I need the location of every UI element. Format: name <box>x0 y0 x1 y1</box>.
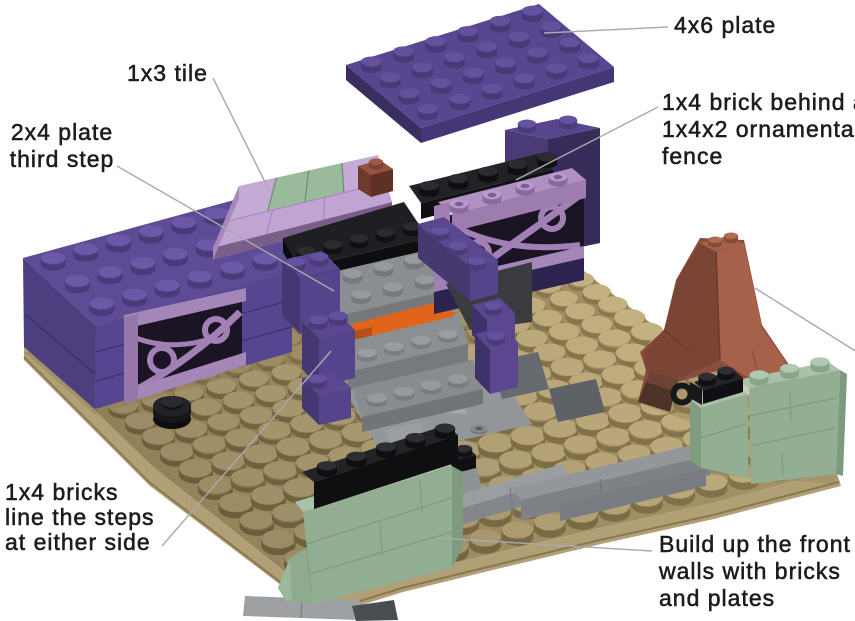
svg-text:1x3 tile: 1x3 tile <box>127 60 208 86</box>
svg-text:Build up the front: Build up the front <box>659 531 851 557</box>
svg-text:1x4 brick behind a: 1x4 brick behind a <box>662 89 855 115</box>
svg-text:line the steps: line the steps <box>5 504 155 530</box>
svg-text:1x4 bricks: 1x4 bricks <box>5 479 119 505</box>
svg-text:2x4 plate: 2x4 plate <box>11 119 113 145</box>
svg-text:walls with bricks: walls with bricks <box>658 558 841 584</box>
svg-text:at either side: at either side <box>5 529 151 555</box>
svg-text:third step: third step <box>10 146 115 172</box>
svg-text:1x4x2 ornamental: 1x4x2 ornamental <box>662 116 855 142</box>
svg-text:4x6 plate: 4x6 plate <box>674 12 776 38</box>
svg-text:fence: fence <box>662 143 723 169</box>
svg-text:and plates: and plates <box>659 585 775 611</box>
